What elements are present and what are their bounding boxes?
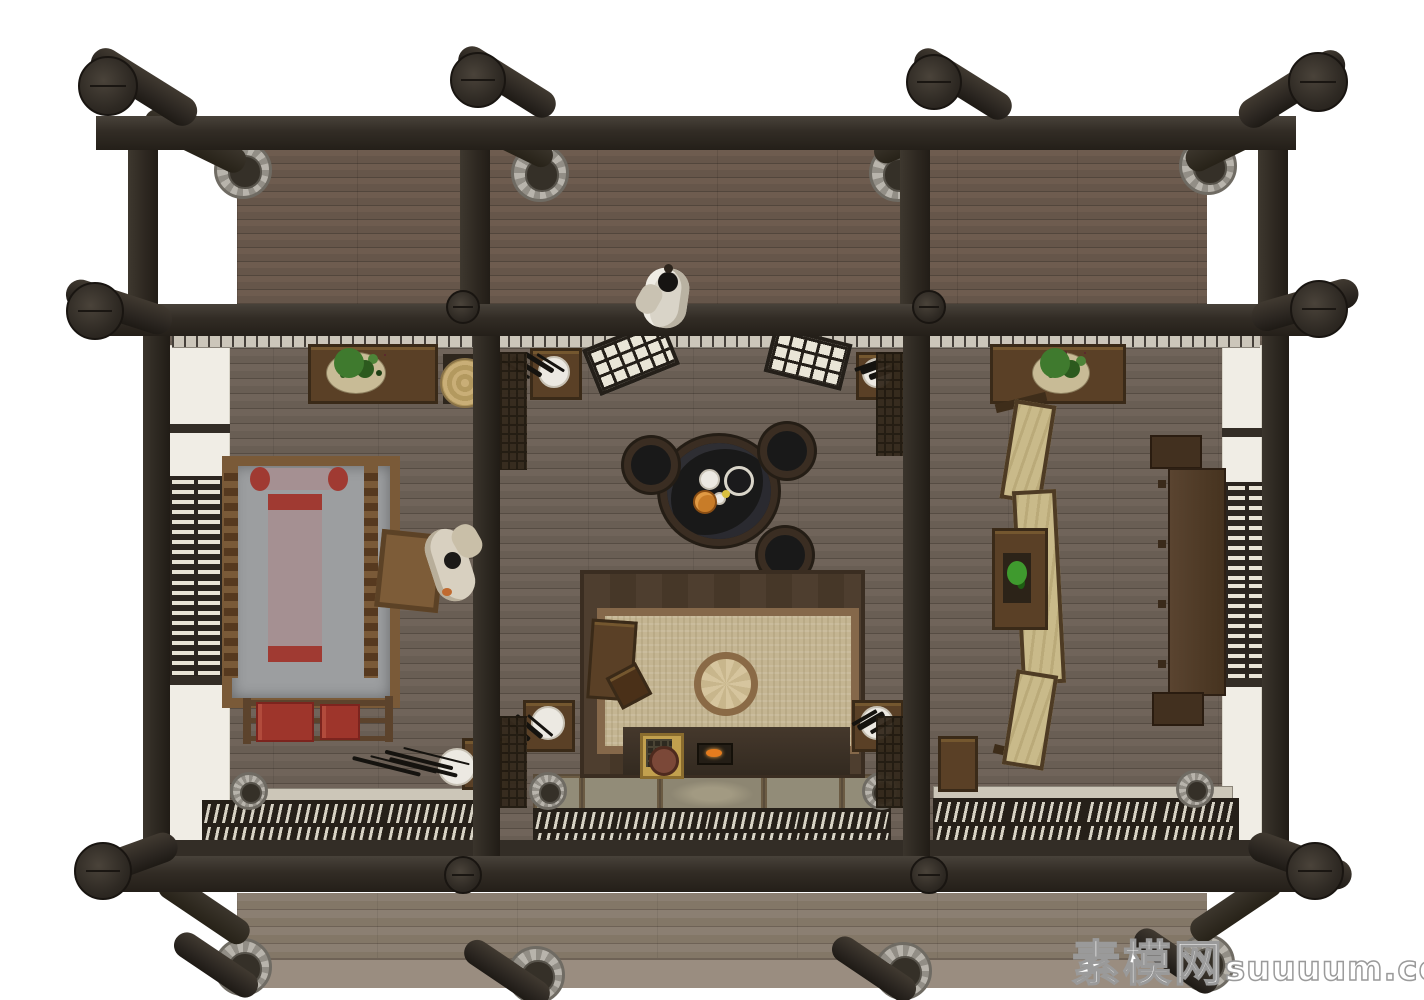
small-cabinet: [938, 736, 978, 792]
rendered-scene: 素模网suuuum.com: [0, 0, 1424, 1000]
timber-beam-middle: [90, 304, 1324, 336]
watermark: 素模网suuuum.com: [1072, 924, 1424, 994]
person-hair: [658, 272, 678, 292]
hearth-pot: [649, 746, 679, 776]
left-wall-rail-top: [168, 424, 230, 433]
bed-carved-rail-left: [224, 466, 238, 678]
partition-lattice-screen: [876, 352, 903, 456]
pillow-end-right: [328, 467, 348, 491]
charcoal-brazier: [624, 438, 678, 492]
person-hair: [444, 552, 461, 569]
log-end-cap: [78, 56, 138, 116]
bonsai-green: [1007, 561, 1027, 585]
tatami-mat: [583, 776, 659, 812]
left-lattice-window: [168, 476, 224, 682]
log-end-cap: [1288, 52, 1348, 112]
bed-carved-rail-right: [364, 466, 378, 678]
stool: [1150, 435, 1202, 469]
bedding-roll: [268, 494, 322, 662]
partition-lattice-screen: [500, 352, 527, 470]
log-end-cap: [1290, 280, 1348, 338]
pillow-end-left: [250, 467, 270, 491]
food-plate-white: [699, 469, 720, 490]
watermark-chinese: 素模网: [1072, 936, 1225, 992]
writing-desk: [1168, 468, 1226, 696]
wall-post-right: [1262, 334, 1289, 860]
log-end-cap: [66, 282, 124, 340]
small-dish-yellow: [722, 490, 730, 498]
stone-base-room: [230, 772, 268, 810]
right-wall-rail-bottom: [1222, 678, 1262, 687]
log-end-cap: [910, 856, 948, 894]
potted-plant: [1040, 348, 1070, 378]
round-cushion: [694, 652, 758, 716]
timber-beam-bottom: [96, 856, 1308, 892]
log-end-cap: [74, 842, 132, 900]
right-wall-rail-top: [1222, 428, 1262, 437]
log-end-cap: [450, 52, 506, 108]
watermark-domain: suuuum.com: [1225, 949, 1424, 989]
bonsai-plate: [538, 356, 570, 388]
stool: [1152, 692, 1204, 726]
partition-lattice-screen: [500, 716, 527, 808]
tatami-mat-patterned: [661, 776, 764, 812]
tatami-mat: [765, 776, 841, 812]
desk-legs: [1158, 480, 1166, 680]
charcoal-brazier: [760, 424, 814, 478]
red-garment: [256, 702, 314, 742]
partition-lattice-screen: [876, 716, 903, 808]
bedding-band-bottom: [268, 646, 322, 662]
left-wall-rail-bottom: [168, 676, 230, 685]
stone-base-room: [529, 772, 567, 810]
figure-person-left: [424, 522, 484, 612]
potted-plant: [334, 348, 364, 378]
figure-person-top: [636, 258, 700, 334]
hearth-stove: [640, 733, 684, 779]
porch-edge-board: [237, 958, 1207, 988]
fire-box: [697, 743, 733, 765]
log-end-cap: [1286, 842, 1344, 900]
timber-beam-top: [96, 116, 1296, 150]
food-bowl-orange: [693, 490, 717, 514]
red-garment: [320, 704, 360, 740]
log-end-cap: [912, 290, 946, 324]
bonsai-stand: [992, 528, 1048, 630]
screen-panel: [1002, 669, 1059, 770]
floor-lower-porch: [237, 893, 1207, 965]
wall-post-left: [143, 334, 170, 860]
log-end-cap: [906, 54, 962, 110]
room-divider-right: [903, 334, 930, 860]
stone-base-room: [1176, 770, 1214, 808]
log-end-cap: [444, 856, 482, 894]
log-end-cap: [446, 290, 480, 324]
bedding-band-top: [268, 494, 322, 510]
